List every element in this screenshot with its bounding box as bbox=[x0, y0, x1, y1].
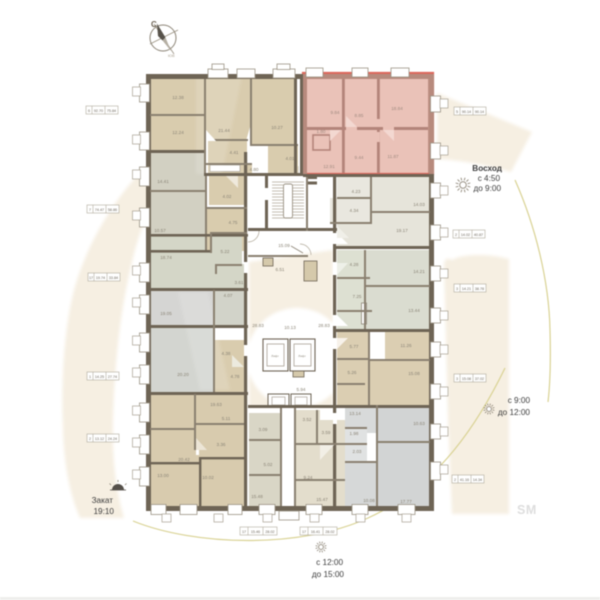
svg-text:3.09: 3.09 bbox=[259, 427, 268, 432]
svg-text:5.94: 5.94 bbox=[297, 387, 306, 392]
svg-text:1.80: 1.80 bbox=[317, 129, 326, 134]
svg-text:2.03: 2.03 bbox=[353, 449, 362, 454]
svg-text:40.87: 40.87 bbox=[474, 233, 483, 237]
svg-text:13.14: 13.14 bbox=[349, 411, 361, 416]
svg-text:14.41: 14.41 bbox=[157, 179, 169, 184]
svg-text:с 12:00: с 12:00 bbox=[316, 558, 343, 567]
svg-text:14.21: 14.21 bbox=[462, 287, 471, 291]
svg-text:1.98: 1.98 bbox=[350, 431, 359, 436]
svg-text:10.08: 10.08 bbox=[363, 498, 375, 503]
svg-text:Лифт: Лифт bbox=[271, 354, 279, 358]
svg-text:Лифт: Лифт bbox=[298, 354, 306, 358]
svg-text:4.02: 4.02 bbox=[223, 194, 232, 199]
svg-text:18.74: 18.74 bbox=[160, 255, 172, 260]
svg-text:74.47: 74.47 bbox=[95, 208, 104, 212]
svg-text:3.61: 3.61 bbox=[235, 280, 244, 285]
svg-text:5.26: 5.26 bbox=[348, 370, 357, 375]
svg-text:19.05: 19.05 bbox=[160, 311, 172, 316]
svg-text:15.47: 15.47 bbox=[316, 497, 328, 502]
svg-text:17: 17 bbox=[242, 530, 246, 534]
svg-text:с 9:00: с 9:00 bbox=[508, 396, 531, 405]
svg-text:1: 1 bbox=[89, 375, 91, 379]
svg-text:с 4:50: с 4:50 bbox=[478, 174, 501, 183]
svg-text:20.20: 20.20 bbox=[177, 372, 189, 377]
svg-text:12.91: 12.91 bbox=[323, 164, 335, 169]
svg-text:С: С bbox=[151, 20, 157, 29]
svg-text:до 15:00: до 15:00 bbox=[312, 570, 345, 579]
svg-text:19.17: 19.17 bbox=[396, 228, 408, 233]
svg-text:3.59: 3.59 bbox=[322, 430, 331, 435]
svg-text:до 12:00: до 12:00 bbox=[498, 408, 531, 417]
svg-text:Восход: Восход bbox=[472, 164, 502, 173]
svg-text:14.21: 14.21 bbox=[413, 269, 425, 274]
svg-text:5: 5 bbox=[456, 110, 458, 114]
svg-text:12.24: 12.24 bbox=[172, 130, 184, 135]
svg-text:9.24: 9.24 bbox=[304, 475, 313, 480]
svg-text:3: 3 bbox=[456, 377, 458, 381]
svg-text:38.78: 38.78 bbox=[475, 287, 484, 291]
svg-text:17: 17 bbox=[302, 530, 306, 534]
svg-text:4.01: 4.01 bbox=[286, 156, 295, 161]
svg-text:10.63: 10.63 bbox=[413, 421, 425, 426]
svg-text:4.80: 4.80 bbox=[250, 167, 259, 172]
svg-text:15.46: 15.46 bbox=[251, 530, 260, 534]
svg-text:3.36: 3.36 bbox=[217, 442, 226, 447]
svg-text:92.70: 92.70 bbox=[94, 109, 103, 113]
svg-text:20.42: 20.42 bbox=[178, 457, 190, 462]
svg-text:до 9:00: до 9:00 bbox=[473, 184, 501, 193]
svg-text:2: 2 bbox=[89, 437, 91, 441]
svg-text:4.23: 4.23 bbox=[352, 189, 361, 194]
svg-text:15.08: 15.08 bbox=[462, 377, 471, 381]
svg-text:28.02: 28.02 bbox=[325, 530, 334, 534]
svg-text:7: 7 bbox=[89, 208, 91, 212]
svg-text:4.41: 4.41 bbox=[230, 150, 239, 155]
svg-text:14.25: 14.25 bbox=[95, 375, 104, 379]
svg-text:15.48: 15.48 bbox=[251, 494, 263, 499]
svg-text:13.00: 13.00 bbox=[157, 473, 169, 478]
svg-text:ЮВ: ЮВ bbox=[168, 53, 175, 58]
svg-text:4.34: 4.34 bbox=[350, 208, 359, 213]
svg-text:14.34: 14.34 bbox=[473, 478, 482, 482]
svg-text:2: 2 bbox=[454, 478, 456, 482]
svg-text:11.87: 11.87 bbox=[387, 154, 399, 159]
svg-text:28.02: 28.02 bbox=[265, 530, 274, 534]
svg-text:19.74: 19.74 bbox=[96, 276, 105, 280]
svg-text:8.85: 8.85 bbox=[355, 113, 364, 118]
svg-text:41.16: 41.16 bbox=[460, 478, 469, 482]
svg-text:4.75: 4.75 bbox=[229, 220, 238, 225]
svg-text:Закат: Закат bbox=[92, 496, 114, 505]
svg-text:15.09: 15.09 bbox=[278, 243, 290, 248]
svg-text:4.78: 4.78 bbox=[231, 374, 240, 379]
svg-text:21.44: 21.44 bbox=[218, 128, 230, 133]
svg-text:19:10: 19:10 bbox=[94, 507, 115, 516]
svg-text:58.86: 58.86 bbox=[108, 208, 117, 212]
svg-text:28.83: 28.83 bbox=[318, 323, 330, 328]
svg-text:SM: SM bbox=[517, 503, 537, 517]
svg-text:17.77: 17.77 bbox=[400, 499, 412, 504]
svg-text:4.07: 4.07 bbox=[224, 293, 233, 298]
svg-text:4.28: 4.28 bbox=[350, 262, 359, 267]
svg-text:75.84: 75.84 bbox=[107, 109, 116, 113]
svg-text:5.11: 5.11 bbox=[222, 416, 231, 421]
svg-text:2: 2 bbox=[455, 233, 457, 237]
svg-text:6.51: 6.51 bbox=[276, 267, 285, 272]
svg-text:5.77: 5.77 bbox=[350, 344, 359, 349]
svg-text:18.84: 18.84 bbox=[391, 106, 403, 111]
svg-text:24.24: 24.24 bbox=[108, 437, 117, 441]
svg-text:9.84: 9.84 bbox=[331, 110, 340, 115]
svg-text:9.44: 9.44 bbox=[355, 155, 364, 160]
svg-text:90.14: 90.14 bbox=[475, 110, 484, 114]
svg-text:14.03: 14.03 bbox=[413, 202, 425, 207]
svg-text:33.84: 33.84 bbox=[109, 276, 118, 280]
svg-text:12.38: 12.38 bbox=[172, 95, 184, 100]
svg-text:3: 3 bbox=[456, 287, 458, 291]
svg-text:6: 6 bbox=[88, 109, 90, 113]
svg-text:19.63: 19.63 bbox=[210, 402, 222, 407]
svg-text:17: 17 bbox=[89, 276, 93, 280]
svg-text:10.27: 10.27 bbox=[271, 125, 283, 130]
svg-text:5.22: 5.22 bbox=[221, 249, 230, 254]
svg-text:10.13: 10.13 bbox=[284, 325, 296, 330]
svg-text:14.02: 14.02 bbox=[461, 233, 470, 237]
svg-text:28.83: 28.83 bbox=[252, 323, 264, 328]
svg-text:3.52: 3.52 bbox=[303, 417, 312, 422]
svg-text:27.74: 27.74 bbox=[108, 375, 117, 379]
svg-text:10.57: 10.57 bbox=[154, 228, 166, 233]
svg-text:11.26: 11.26 bbox=[400, 343, 412, 348]
svg-text:15.08: 15.08 bbox=[408, 371, 420, 376]
svg-text:37.02: 37.02 bbox=[475, 377, 484, 381]
svg-text:13.44: 13.44 bbox=[408, 308, 420, 313]
svg-text:5.02: 5.02 bbox=[264, 462, 273, 467]
svg-text:16.41: 16.41 bbox=[311, 530, 320, 534]
svg-text:13.12: 13.12 bbox=[95, 437, 104, 441]
svg-text:90.14: 90.14 bbox=[462, 110, 471, 114]
svg-text:7.25: 7.25 bbox=[353, 294, 362, 299]
svg-text:10.02: 10.02 bbox=[202, 475, 214, 480]
svg-text:4.38: 4.38 bbox=[222, 351, 231, 356]
